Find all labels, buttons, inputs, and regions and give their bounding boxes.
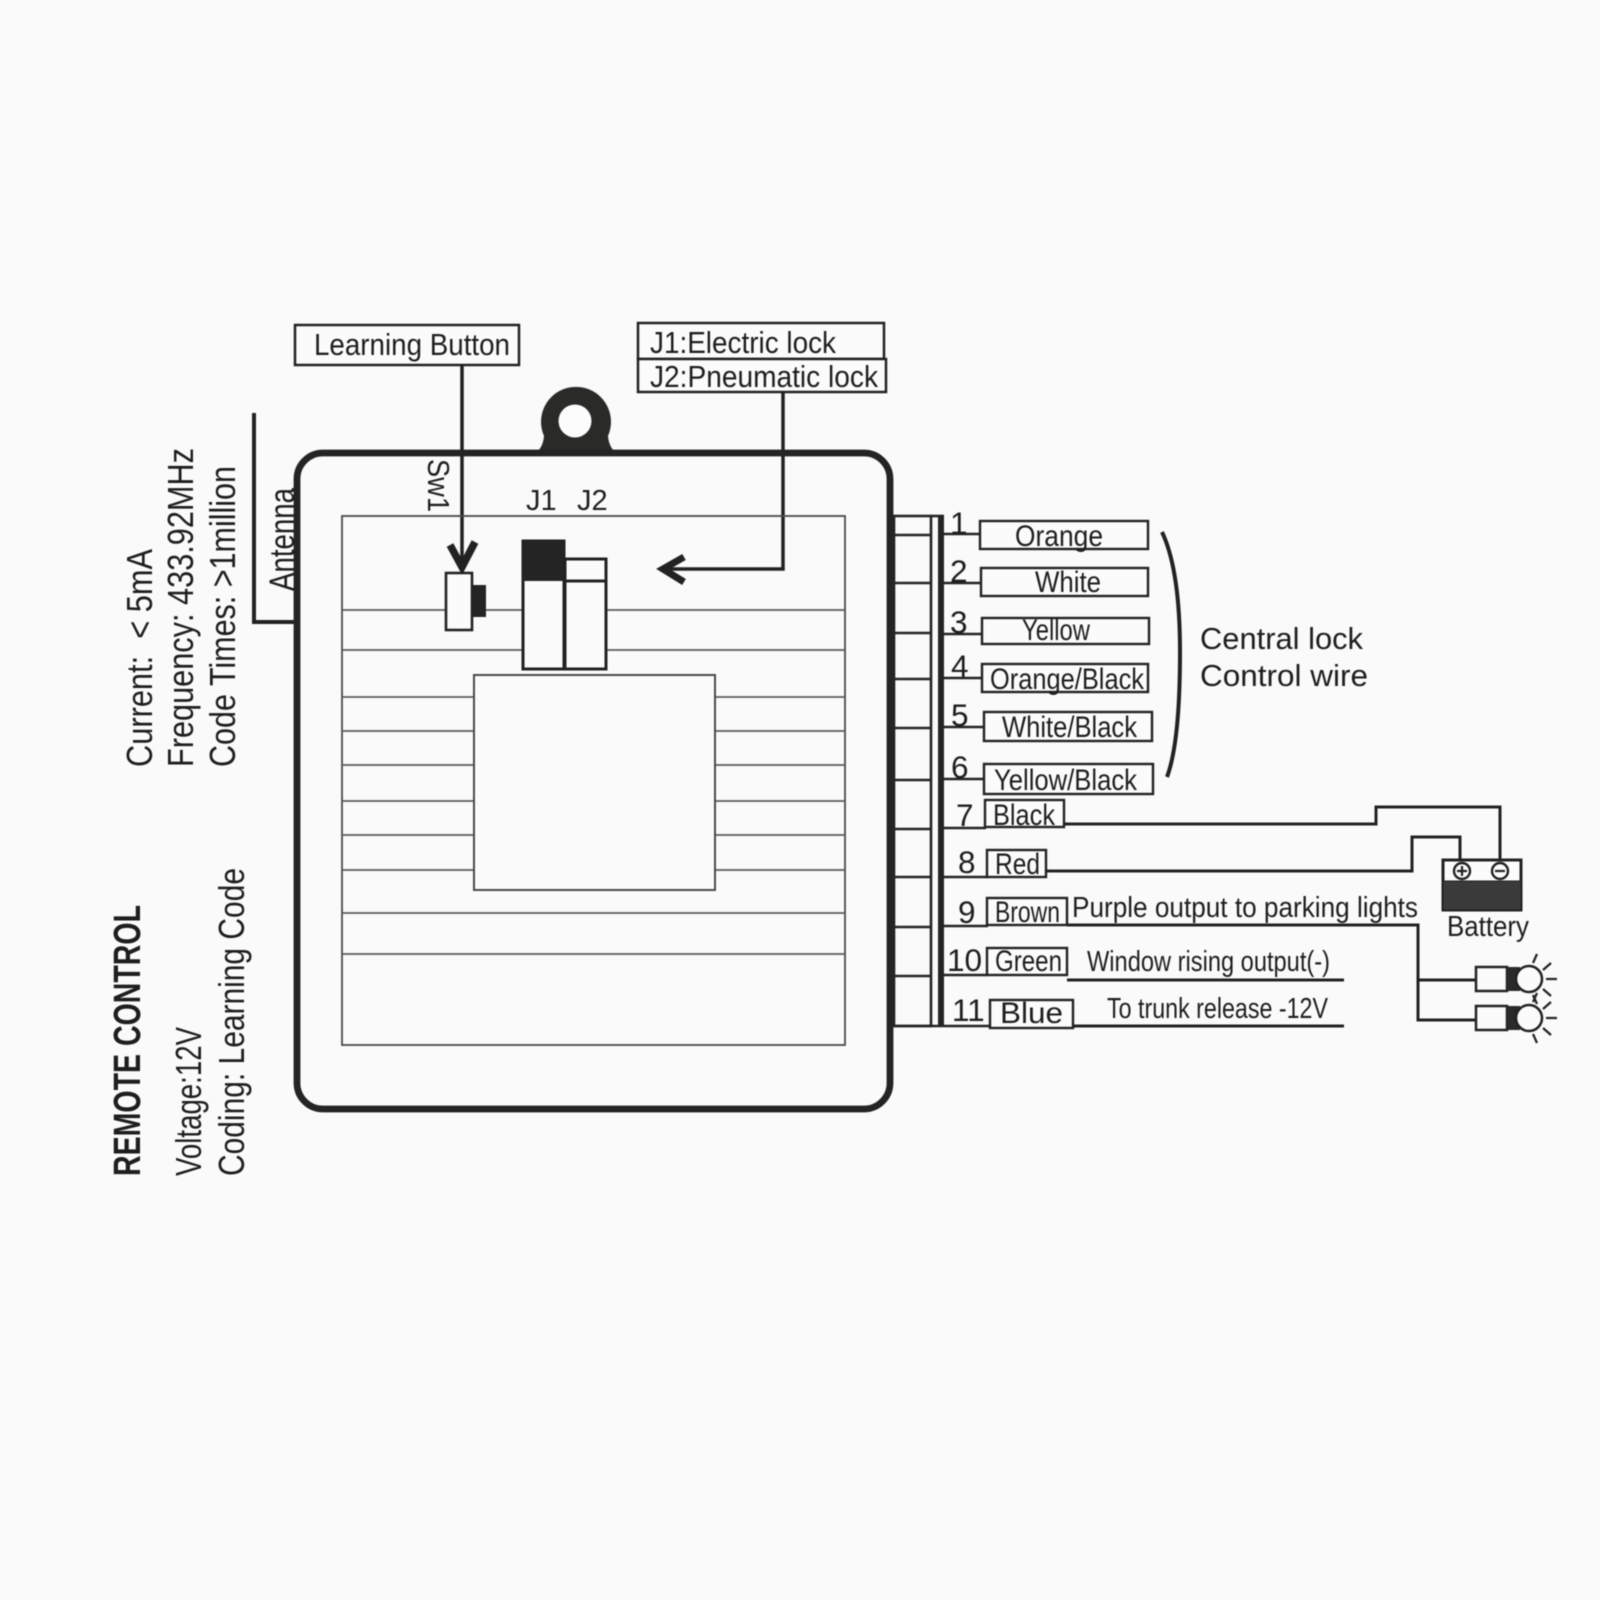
svg-text:Yellow: Yellow — [1022, 614, 1090, 647]
svg-text:Code Times: >1million: Code Times: >1million — [202, 466, 243, 767]
svg-text:Battery: Battery — [1447, 911, 1529, 943]
svg-text:Orange: Orange — [1015, 520, 1103, 553]
svg-text:J2:Pneumatic lock: J2:Pneumatic lock — [650, 359, 878, 394]
svg-text:3: 3 — [950, 604, 968, 640]
svg-text:Sw1: Sw1 — [421, 459, 456, 512]
svg-text:Control wire: Control wire — [1200, 658, 1368, 693]
svg-text:7: 7 — [956, 797, 974, 833]
svg-text:11: 11 — [952, 992, 985, 1028]
svg-text:Current: < 5mA: Current: < 5mA — [119, 549, 160, 767]
svg-text:1: 1 — [950, 505, 968, 541]
svg-text:4: 4 — [951, 648, 969, 684]
svg-text:J2: J2 — [577, 485, 608, 517]
svg-text:Window rising output(-): Window rising output(-) — [1087, 946, 1330, 978]
svg-text:Central lock: Central lock — [1200, 621, 1363, 656]
svg-text:Blue: Blue — [1000, 997, 1063, 1030]
svg-text:9: 9 — [958, 894, 976, 930]
svg-text:2: 2 — [950, 553, 968, 589]
svg-text:Brown: Brown — [995, 896, 1060, 929]
svg-text:Learning Button: Learning Button — [314, 327, 510, 362]
svg-text:Antenna: Antenna — [263, 488, 302, 591]
svg-text:8: 8 — [958, 844, 976, 880]
svg-text:Purple output to parking light: Purple output to parking lights — [1072, 892, 1418, 924]
svg-text:Frequency: 433.92MHz: Frequency: 433.92MHz — [160, 448, 201, 767]
svg-text:Orange/Black: Orange/Black — [990, 663, 1145, 696]
svg-text:White: White — [1035, 566, 1101, 599]
svg-text:10: 10 — [947, 942, 982, 978]
svg-text:J1:Electric lock: J1:Electric lock — [650, 325, 836, 360]
svg-text:5: 5 — [951, 697, 969, 733]
svg-text:REMOTE CONTROL: REMOTE CONTROL — [107, 905, 149, 1176]
svg-text:Green: Green — [995, 945, 1062, 978]
svg-text:Black: Black — [993, 799, 1056, 832]
svg-text:6: 6 — [951, 749, 969, 785]
svg-text:Coding: Learning Code: Coding: Learning Code — [211, 868, 252, 1176]
svg-text:J1: J1 — [526, 485, 557, 517]
svg-text:Yellow/Black: Yellow/Black — [994, 764, 1138, 797]
svg-text:Voltage:12V: Voltage:12V — [168, 1027, 209, 1176]
svg-text:White/Black: White/Black — [1002, 711, 1138, 744]
svg-text:Red: Red — [995, 848, 1040, 881]
svg-text:To trunk release -12V: To trunk release -12V — [1107, 993, 1329, 1025]
